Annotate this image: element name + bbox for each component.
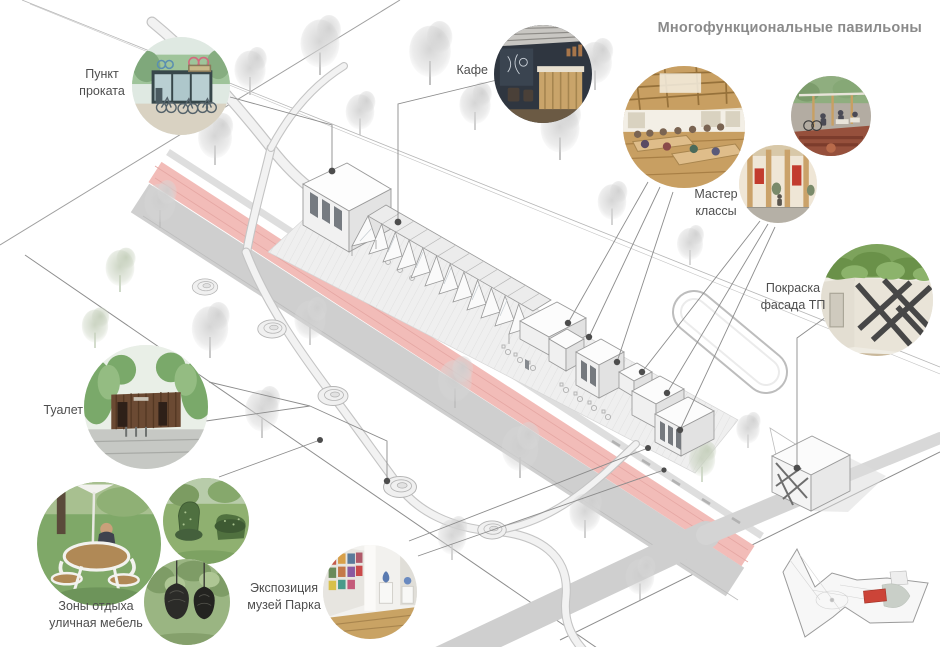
- rest-photo-chairs: [163, 478, 249, 564]
- tp-building: [772, 436, 886, 512]
- cafe-label: Кафе: [448, 62, 488, 79]
- museum-photo: [323, 545, 417, 639]
- toilet-label: Туалет: [28, 402, 83, 419]
- page-title: Многофункциональные павильоны: [658, 20, 922, 36]
- workshops-photo-outdoor: [791, 76, 871, 156]
- oval-loop-path: [694, 312, 766, 372]
- museum-label: Экспозиция музей Парка: [234, 580, 334, 614]
- rental-label: Пункт проката: [62, 66, 142, 100]
- keyplan-highlight: [863, 589, 886, 603]
- rest-photo-picnic: [37, 482, 161, 606]
- pavilions-infographic: Пункт проката Кафе: [0, 0, 940, 647]
- rental-photo: [132, 37, 230, 135]
- rest-photo-hanging: [144, 559, 230, 645]
- facade-photo: [821, 244, 933, 356]
- cafe-photo: [494, 25, 592, 123]
- rest-label: Зоны отдыха уличная мебель: [38, 598, 154, 632]
- key-plan: [783, 549, 928, 637]
- workshops-label: Мастер классы: [676, 186, 756, 220]
- workshops-photo-interior: [623, 66, 745, 188]
- toilet-photo: [84, 345, 208, 469]
- facade-label: Покраска фасада ТП: [753, 280, 833, 314]
